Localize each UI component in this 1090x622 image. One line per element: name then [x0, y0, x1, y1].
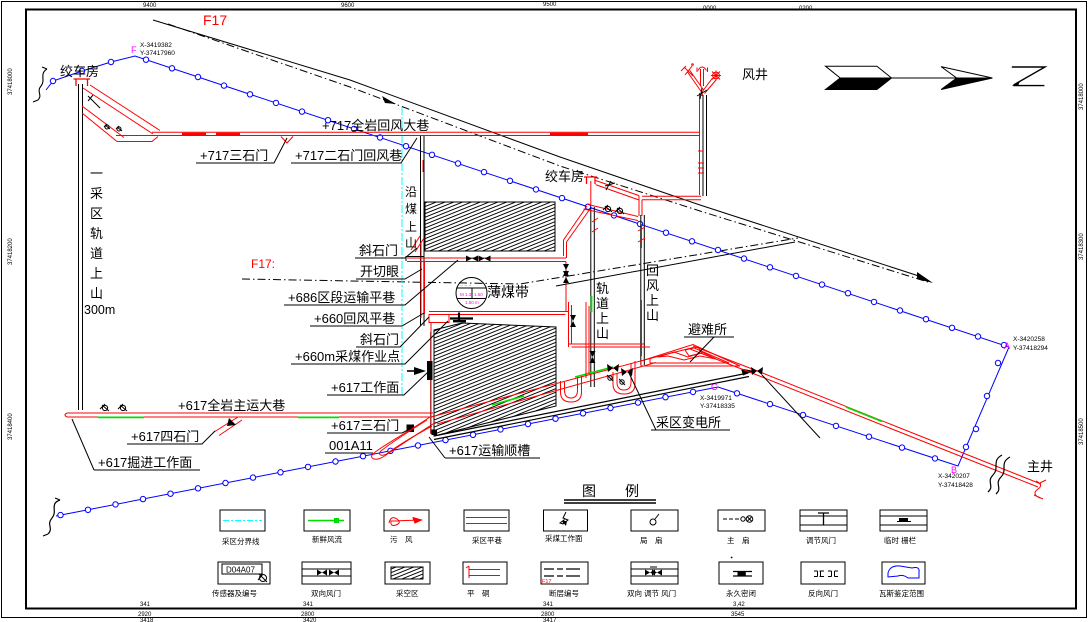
svg-text:一: 一: [90, 166, 103, 181]
svg-text:0200: 0200: [799, 6, 813, 12]
svg-text:避难所: 避难所: [688, 322, 727, 337]
svg-text:上: 上: [90, 266, 103, 281]
svg-text:-- -- --: -- -- --: [460, 283, 472, 288]
svg-text:上: 上: [596, 311, 609, 326]
svg-text:山: 山: [405, 236, 417, 250]
svg-text:3417: 3417: [543, 618, 557, 622]
svg-text:+617四石门: +617四石门: [131, 429, 199, 444]
svg-text:1.50: 1.50: [474, 292, 483, 297]
svg-text:回: 回: [646, 263, 659, 278]
svg-text:X-3419382: X-3419382: [140, 42, 172, 49]
svg-text:斜石门: 斜石门: [359, 243, 398, 258]
svg-text:主井: 主井: [1027, 459, 1053, 474]
svg-text:37418200: 37418200: [8, 238, 14, 265]
svg-text:图: 图: [582, 483, 596, 499]
svg-text:开切眼: 开切眼: [360, 264, 399, 279]
svg-text:+617掘进工作面: +617掘进工作面: [98, 455, 192, 470]
svg-text:绞车房: 绞车房: [60, 64, 99, 79]
svg-text:双向 调节 风门: 双向 调节 风门: [627, 588, 676, 598]
svg-text:F: F: [131, 45, 137, 55]
svg-text:轨: 轨: [596, 281, 609, 296]
svg-text:永久密闭: 永久密闭: [726, 588, 756, 598]
svg-text:平 硐: 平 硐: [467, 589, 490, 598]
svg-text:+617全岩主运大巷: +617全岩主运大巷: [178, 398, 285, 413]
svg-text:D04A07: D04A07: [226, 566, 255, 575]
svg-text:+686区段运输平巷: +686区段运输平巷: [288, 290, 395, 305]
svg-text:反向风门: 反向风门: [808, 588, 838, 598]
svg-text:341: 341: [543, 602, 554, 608]
svg-text:+717二石门回风巷: +717二石门回风巷: [295, 148, 402, 163]
svg-text:薄煤带: 薄煤带: [487, 284, 529, 300]
svg-text:采空区: 采空区: [396, 588, 419, 598]
svg-text:0000: 0000: [703, 6, 717, 12]
svg-text:传感器及编号: 传感器及编号: [212, 588, 257, 598]
svg-text:新鲜风流: 新鲜风流: [312, 534, 342, 544]
svg-text:341: 341: [303, 602, 314, 608]
svg-text:X-3420207: X-3420207: [938, 473, 970, 480]
svg-text:采区平巷: 采区平巷: [472, 535, 502, 545]
svg-text:临时 栅栏: 临时 栅栏: [884, 535, 917, 545]
svg-text:+660m采煤作业点: +660m采煤作业点: [295, 349, 400, 364]
svg-text:风: 风: [646, 278, 659, 293]
svg-text:37418000: 37418000: [1079, 83, 1085, 110]
svg-text:双向风门: 双向风门: [311, 588, 341, 598]
svg-text:道: 道: [90, 246, 103, 261]
svg-text:采煤工作面: 采煤工作面: [545, 533, 583, 543]
svg-text:Y-37418294: Y-37418294: [1013, 345, 1048, 352]
svg-text:沿: 沿: [405, 185, 417, 199]
svg-text:Y-37418428: Y-37418428: [938, 482, 973, 489]
svg-text:3420: 3420: [303, 618, 317, 622]
svg-text:F17:: F17:: [251, 257, 275, 271]
svg-text:3545: 3545: [731, 612, 745, 618]
svg-text:污 风: 污 风: [390, 535, 413, 544]
svg-text:+617三石门: +617三石门: [331, 418, 399, 433]
svg-text:风井: 风井: [742, 67, 768, 82]
svg-text:F17: F17: [542, 579, 551, 585]
svg-text:M 1.3: M 1.3: [460, 292, 472, 297]
svg-text:+717全岩回风大巷: +717全岩回风大巷: [322, 118, 429, 133]
svg-text:+617工作面: +617工作面: [331, 380, 399, 395]
svg-text:采区变电所: 采区变电所: [656, 415, 721, 430]
svg-text:Y-37417960: Y-37417960: [140, 50, 175, 57]
svg-text:上: 上: [646, 293, 659, 308]
svg-text:煤: 煤: [405, 202, 417, 216]
svg-text:Y-37418335: Y-37418335: [700, 403, 735, 410]
svg-text:A: A: [1004, 341, 1010, 351]
svg-text:斜石门: 斜石门: [360, 332, 399, 347]
svg-text:局 扇: 局 扇: [640, 535, 663, 545]
svg-text:37418300: 37418300: [1079, 233, 1085, 260]
svg-text:9500: 9500: [543, 2, 557, 8]
svg-text:采: 采: [90, 186, 103, 201]
svg-text:主 扇: 主 扇: [727, 535, 750, 545]
svg-text:道: 道: [596, 296, 609, 311]
svg-text:1.50 m: 1.50 m: [465, 300, 479, 305]
svg-text:X-3420258: X-3420258: [1013, 336, 1045, 343]
svg-text:+617运输顺槽: +617运输顺槽: [449, 443, 530, 458]
svg-text:区: 区: [90, 206, 103, 221]
svg-text:调节风门: 调节风门: [806, 536, 836, 545]
svg-text:绞车房: 绞车房: [545, 169, 584, 184]
svg-text:37418400: 37418400: [8, 413, 14, 440]
svg-text:例: 例: [625, 483, 639, 499]
svg-text:341: 341: [140, 602, 151, 608]
svg-text:37418000: 37418000: [8, 68, 14, 95]
svg-text:山: 山: [646, 308, 659, 323]
svg-text:采区分界线: 采区分界线: [222, 536, 260, 546]
svg-text:001A11: 001A11: [329, 438, 373, 453]
svg-text:瓦斯鉴定范围: 瓦斯鉴定范围: [879, 588, 924, 598]
svg-text:+660回风平巷: +660回风平巷: [314, 311, 395, 326]
svg-text:F17: F17: [203, 12, 227, 28]
svg-text:山: 山: [596, 326, 609, 341]
svg-text:9400: 9400: [143, 3, 157, 9]
svg-text:上: 上: [405, 220, 417, 234]
svg-text:山: 山: [90, 286, 103, 301]
svg-text:+717三石门: +717三石门: [200, 148, 268, 163]
svg-text:3,42: 3,42: [733, 602, 745, 608]
svg-text:9600: 9600: [341, 3, 355, 9]
svg-text:轨: 轨: [90, 226, 103, 241]
svg-text:37418500: 37418500: [1079, 418, 1085, 445]
svg-text:300m: 300m: [84, 303, 115, 317]
svg-text:3418: 3418: [140, 618, 154, 622]
svg-text:断层编号: 断层编号: [549, 588, 579, 598]
svg-text:X-3419971: X-3419971: [700, 395, 732, 402]
